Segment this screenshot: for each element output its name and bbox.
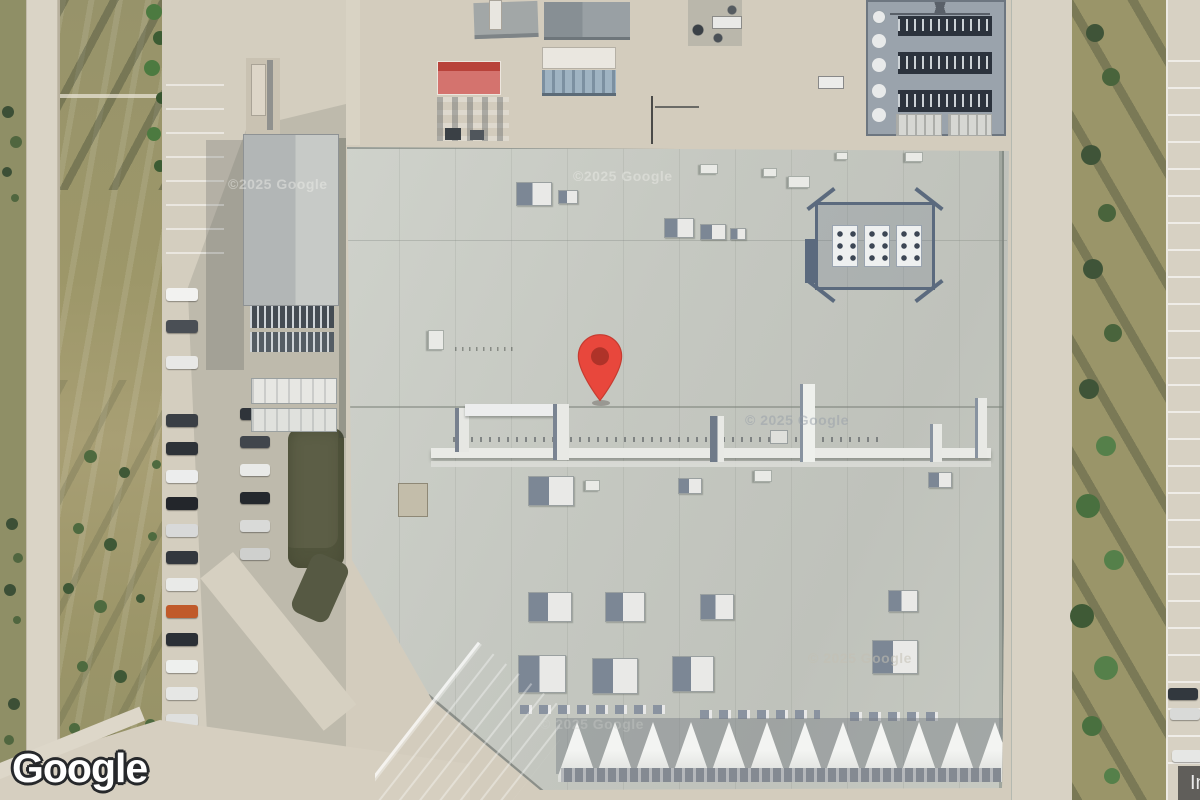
roof-seam — [347, 406, 1003, 408]
footpath — [60, 94, 162, 98]
trailer — [251, 408, 337, 432]
imagery-watermark: © 2025 Google — [808, 650, 912, 666]
rooftop-hvac-unit — [528, 592, 572, 622]
rooftop-hvac-unit — [672, 656, 714, 692]
duct-junction — [770, 430, 788, 444]
loading-dock-strip — [561, 768, 1001, 782]
chiller-bank — [898, 16, 992, 36]
rooftop-hvac-unit — [516, 182, 552, 206]
parked-car — [166, 524, 198, 537]
rooftop-hvac-unit — [558, 190, 578, 204]
rooftop-hvac-unit — [592, 658, 638, 694]
duct-riser — [930, 424, 942, 462]
parked-car — [240, 520, 270, 532]
pipe-supports — [453, 437, 883, 442]
parked-car — [1170, 708, 1200, 720]
rooftop-vent — [700, 164, 718, 174]
parking-stall-lines — [1168, 60, 1200, 766]
duct-riser — [710, 416, 724, 462]
parked-car — [166, 356, 198, 369]
rooftop-hvac-unit — [528, 476, 574, 506]
truck-trailer — [251, 64, 266, 116]
road-left — [26, 0, 58, 800]
chiller-yard — [866, 0, 1006, 136]
rooftop-hvac-unit — [664, 218, 694, 238]
parked-car — [166, 660, 198, 673]
chiller-bank — [898, 52, 992, 74]
duct-riser — [975, 398, 987, 458]
attribution-text: Imagery ©2025 Airbus, Maxar Technologies… — [1190, 772, 1200, 795]
rooftop-shed — [398, 483, 428, 517]
red-roof-building — [437, 61, 501, 95]
parking-stalls-right — [1166, 0, 1200, 800]
building-shadow — [206, 140, 244, 370]
parked-car — [166, 497, 198, 510]
rooftop-hvac-unit — [928, 472, 952, 488]
tank-row — [872, 10, 886, 24]
rooftop-hvac-row — [250, 306, 334, 328]
parked-car — [166, 470, 198, 483]
parked-car — [240, 548, 270, 560]
tree-row — [1096, 436, 1116, 456]
google-logo[interactable]: Google — [12, 748, 147, 789]
parked-car — [166, 288, 198, 301]
red-map-pin-icon[interactable] — [577, 332, 623, 404]
parked-car — [166, 414, 198, 427]
storage-box — [470, 130, 484, 140]
tree-cluster — [84, 450, 97, 463]
parked-car — [166, 687, 198, 700]
container — [896, 114, 942, 136]
attribution-bar: Imagery ©2025 Airbus, Maxar Technologies… — [1178, 766, 1200, 800]
container — [948, 114, 992, 136]
teal-roof-building — [375, 628, 560, 800]
tree-shadows — [1072, 0, 1166, 800]
utility-pole — [651, 96, 653, 144]
parked-car — [166, 578, 198, 591]
outbuilding-roof — [544, 2, 630, 40]
roof-edge — [345, 146, 1011, 149]
exhaust-panel — [896, 225, 922, 267]
annex-roof — [243, 134, 339, 306]
trailer — [818, 76, 844, 89]
trailer — [251, 378, 337, 404]
grass-field-left — [60, 0, 162, 800]
tree-row — [146, 4, 162, 20]
rooftop-hvac-unit — [605, 592, 645, 622]
rooftop-vent — [763, 168, 777, 177]
storage-box — [445, 128, 461, 140]
utility-pole — [655, 106, 699, 108]
parked-car — [1172, 750, 1200, 762]
platform-leg — [805, 239, 815, 283]
parked-car — [166, 605, 198, 618]
rooftop-vent — [428, 330, 444, 350]
parked-car — [166, 633, 198, 646]
rooftop-hvac-unit — [678, 478, 702, 494]
truck — [489, 0, 502, 30]
tree-row — [2, 106, 14, 118]
tree-row — [1086, 24, 1104, 42]
rooftop-hvac-row — [250, 332, 334, 352]
roof-edge — [999, 150, 1004, 790]
rooftop-vent — [585, 480, 600, 491]
dock-shadow — [267, 60, 273, 130]
duct-riser — [553, 404, 569, 460]
parked-car — [240, 464, 270, 476]
rooftop-hvac-unit — [700, 224, 726, 240]
grass-strip-right — [1072, 0, 1166, 800]
duct-arm — [465, 404, 565, 416]
landscaping-shrubs — [288, 428, 344, 568]
parked-car — [166, 551, 198, 564]
rooftop-vent — [836, 152, 848, 160]
chiller-bank — [898, 90, 992, 112]
exhaust-panel — [864, 225, 890, 267]
satellite-map-canvas[interactable]: ©2025 Google ©2025 Google © 2025 Google … — [0, 0, 1200, 800]
exhaust-panel — [832, 225, 858, 267]
imagery-watermark: ©2025 Google — [228, 176, 328, 192]
trailer — [712, 16, 742, 29]
parked-car — [240, 492, 270, 504]
teal-roof — [375, 642, 560, 800]
steel-lattice — [890, 2, 990, 15]
rooftop-vent — [788, 176, 810, 188]
parked-car — [1168, 688, 1198, 700]
rooftop-vent — [905, 152, 923, 162]
rooftop-hvac-unit — [730, 228, 746, 240]
imagery-watermark: © 2025 Google — [540, 716, 644, 732]
grass-strip-far-left — [0, 0, 26, 800]
rooftop-vent — [754, 470, 772, 482]
parked-car — [240, 436, 270, 448]
outbuilding-roof — [473, 1, 538, 39]
trailer — [542, 70, 616, 96]
alley-shadow — [339, 138, 346, 438]
parked-car — [166, 442, 198, 455]
road-right — [1011, 0, 1072, 800]
steel-platform — [815, 202, 935, 290]
rooftop-hvac-unit — [888, 590, 918, 612]
rooftop-hvac-unit — [700, 594, 734, 620]
imagery-watermark: ©2025 Google — [573, 168, 673, 184]
vent-row — [455, 347, 513, 351]
imagery-watermark: © 2025 Google — [745, 412, 849, 428]
parked-car — [166, 320, 198, 333]
trailer — [542, 47, 616, 69]
